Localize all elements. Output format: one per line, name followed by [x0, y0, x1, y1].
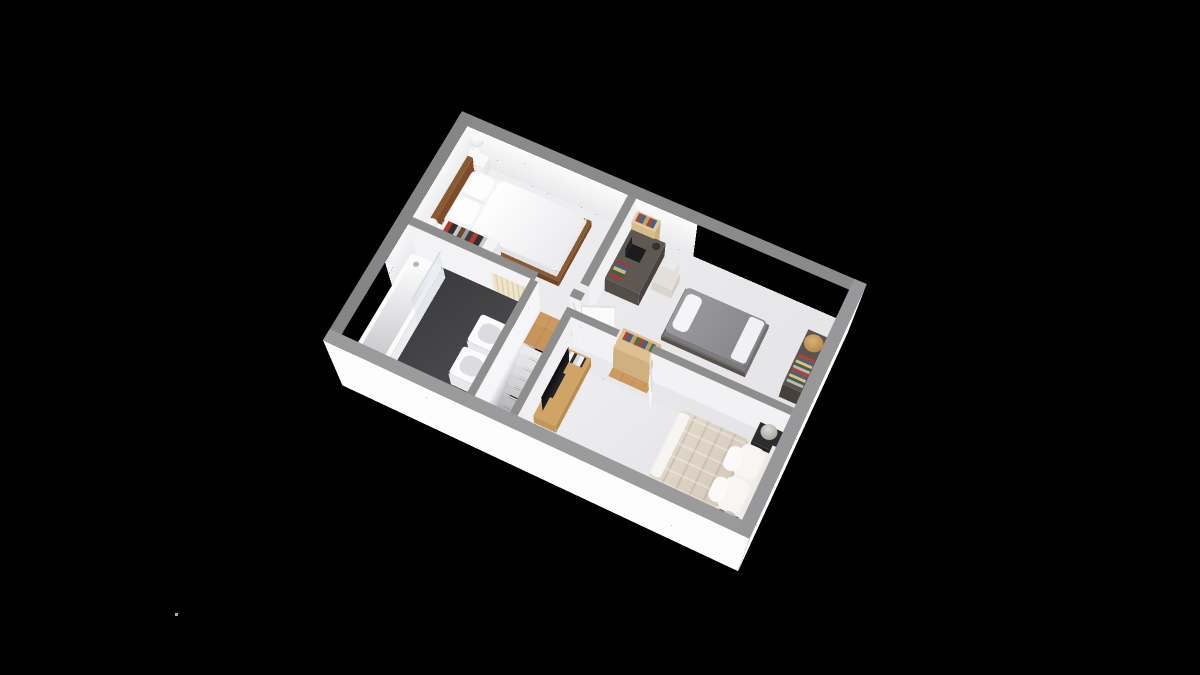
artifact-dot	[175, 613, 178, 616]
render-canvas	[0, 0, 1200, 675]
floorplan-scene	[335, 146, 855, 558]
